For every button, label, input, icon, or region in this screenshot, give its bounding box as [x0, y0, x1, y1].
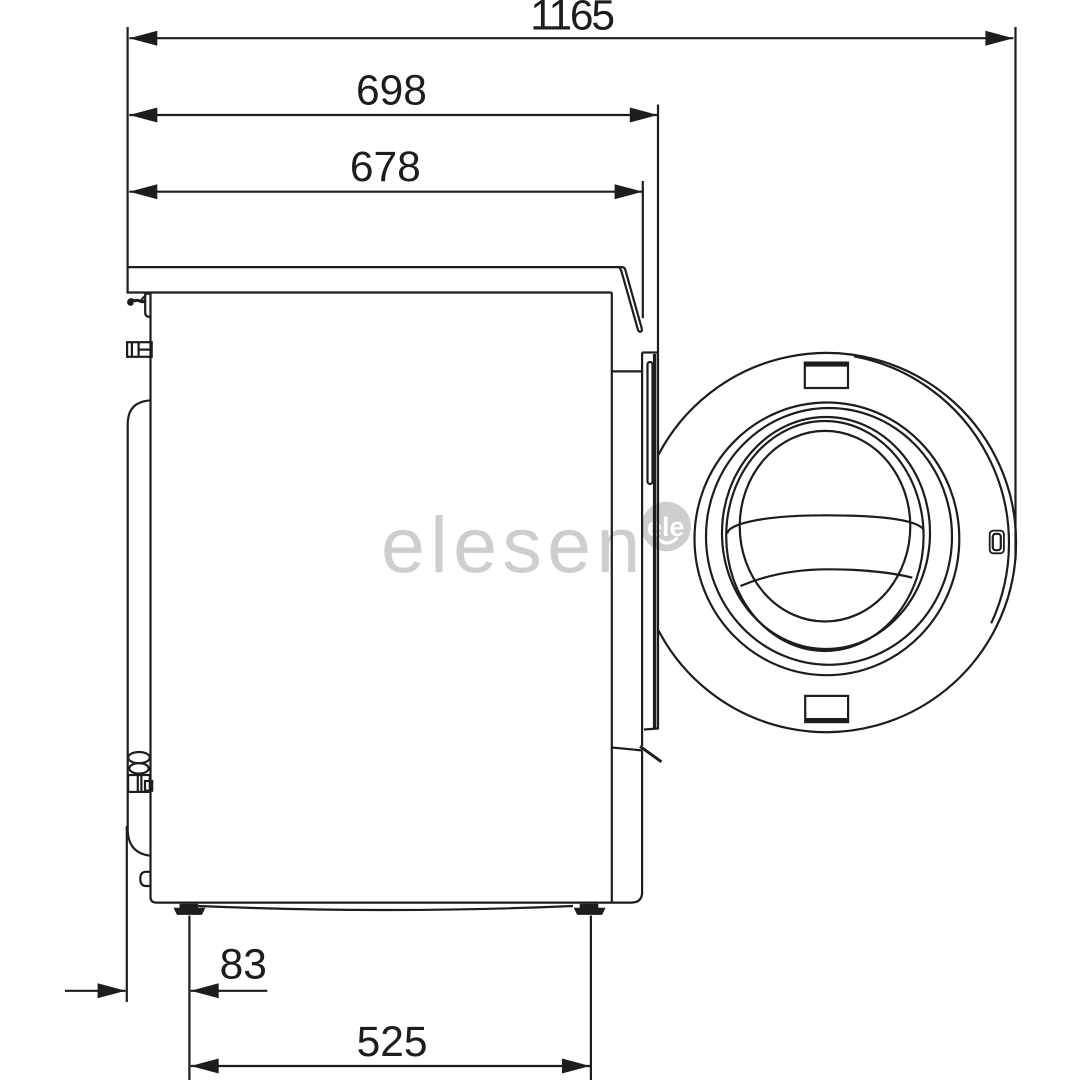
svg-text:678: 678: [350, 144, 421, 191]
svg-text:83: 83: [220, 941, 267, 988]
svg-text:698: 698: [356, 68, 427, 115]
svg-text:elesen: elesen: [381, 500, 646, 589]
svg-text:525: 525: [357, 1019, 428, 1066]
svg-text:ele: ele: [647, 512, 685, 542]
svg-text:1165: 1165: [530, 0, 613, 40]
